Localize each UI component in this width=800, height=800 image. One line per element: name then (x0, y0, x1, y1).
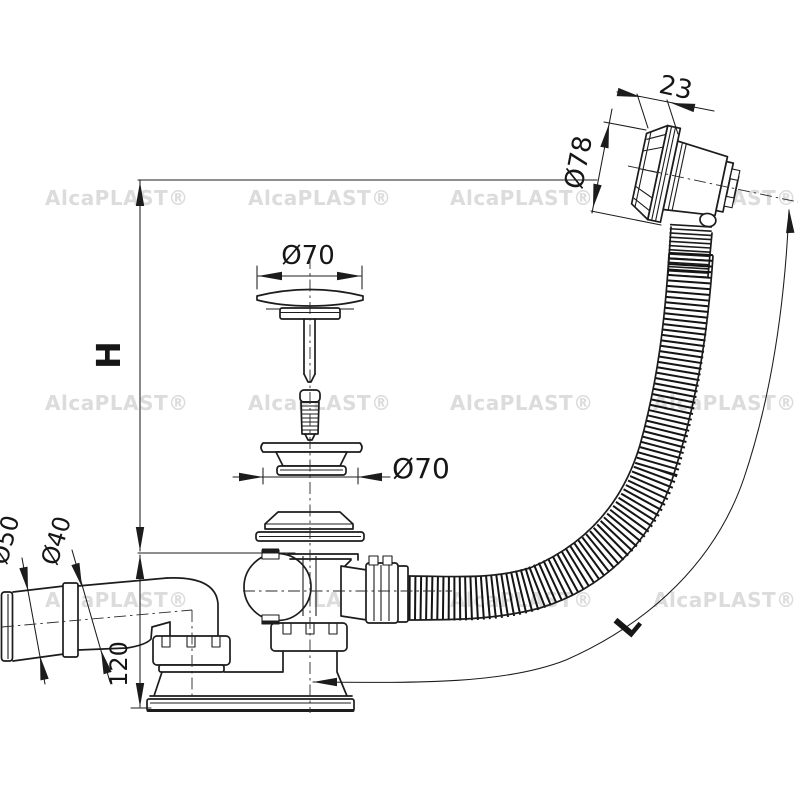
dimension-h: H (89, 180, 597, 553)
dim-label-h: H (89, 341, 128, 369)
corrugated-hose (397, 253, 713, 622)
dim-label-dia40: Ø40 (36, 513, 77, 568)
plug-seal-body (276, 452, 347, 466)
dim-label-dia78: Ø78 (559, 133, 599, 191)
head-bayonet-tab (730, 169, 740, 180)
watermark-text: AlcaPLAST® (653, 391, 797, 415)
watermark-text: AlcaPLAST® (45, 186, 189, 210)
dim-label-dia50: Ø50 (0, 512, 25, 567)
watermark-text: AlcaPLAST® (653, 588, 797, 612)
dim-label-dia70-seal: Ø70 (392, 452, 450, 485)
head-bayonet-tab (724, 196, 734, 207)
drain-ball (244, 554, 311, 621)
hose-spigot (341, 566, 367, 620)
hose-inner-edge (407, 254, 669, 577)
dimension-dia70-plug: Ø70 (257, 241, 362, 289)
dimension-23: 23 (617, 70, 714, 134)
drain-body (244, 549, 398, 625)
dim-label-dia70-plug: Ø70 (281, 241, 335, 271)
elbow-union-nut (153, 636, 230, 672)
plug-seal-flange (261, 443, 362, 452)
hose-union-nut (366, 563, 398, 623)
watermark-text: AlcaPLAST® (45, 391, 189, 415)
hose-ribs (407, 253, 691, 599)
overflow-head-tail (668, 225, 712, 276)
watermark-text: AlcaPLAST® (450, 186, 594, 210)
bath-siphon-drawing: AlcaPLAST® AlcaPLAST® AlcaPLAST® AlcaPLA… (0, 0, 800, 800)
bottom-union-nut (271, 623, 347, 651)
watermark-text: AlcaPLAST® (248, 186, 392, 210)
plug-rod (304, 319, 315, 374)
dim-label-l: L (606, 605, 648, 645)
dimension-120: 120 (105, 555, 151, 708)
watermark-text: AlcaPLAST® (450, 391, 594, 415)
technical-drawing-page: AlcaPLAST® AlcaPLAST® AlcaPLAST® AlcaPLA… (0, 0, 800, 800)
overflow-head (629, 122, 746, 236)
